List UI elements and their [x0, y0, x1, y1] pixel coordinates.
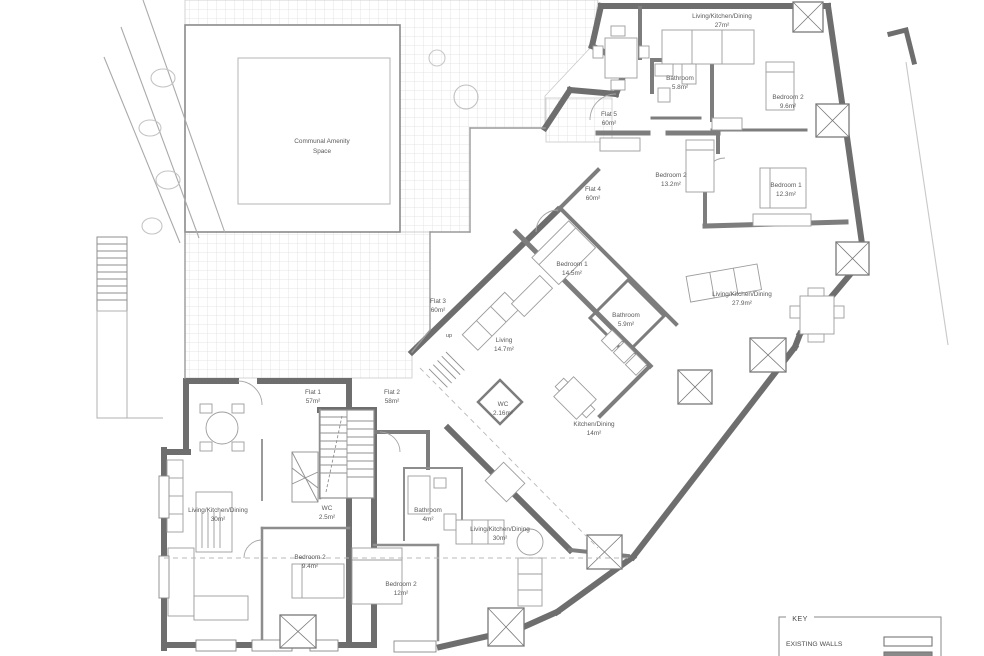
- label-flat3-area: 60m²: [431, 307, 446, 314]
- label-wc-216-area: 2.16m²: [493, 410, 513, 417]
- label-kitchen-dining-area: 14m²: [587, 430, 602, 437]
- label-bathroom-59: Bathroom: [612, 312, 640, 319]
- label-lkd-27-area: 27m²: [715, 22, 730, 29]
- key-row-existing-walls: EXISTING WALLS: [786, 641, 843, 648]
- structural-column-icon: [678, 370, 712, 404]
- label-bedroom2-12: Bedroom 2: [385, 581, 417, 588]
- structural-column-icon: [816, 104, 849, 137]
- floorplan-canvas: Communal Amenity Space Living/Kitchen/Di…: [0, 0, 984, 656]
- structural-column-icon: [750, 338, 786, 372]
- label-bathroom-4-area: 4m²: [422, 516, 433, 523]
- structural-column-icon: [280, 615, 316, 648]
- structural-column-icon: [587, 535, 622, 569]
- label-bedroom1-145: Bedroom 1: [556, 261, 588, 268]
- label-lkd-30-flat1-area: 30m²: [211, 516, 226, 523]
- label-bathroom-59-area: 5.9m²: [618, 321, 634, 328]
- label-bedroom2-132: Bedroom 2: [655, 172, 687, 179]
- label-bedroom1-145-area: 14.5m²: [562, 270, 582, 277]
- label-bedroom2-132-area: 13.2m²: [661, 181, 681, 188]
- label-lkd-279: Living/Kitchen/Dining: [712, 291, 772, 298]
- label-bedroom2-96: Bedroom 2: [772, 94, 804, 101]
- label-flat5-area: 60m²: [602, 120, 617, 127]
- label-bedroom2-12-area: 12m²: [394, 590, 409, 597]
- structural-column-icon: [488, 608, 524, 646]
- label-communal-amenity-2: Space: [313, 148, 332, 155]
- label-bathroom-58: Bathroom: [666, 75, 694, 82]
- label-communal-amenity: Communal Amenity: [294, 138, 350, 145]
- label-wc-216: WC: [498, 401, 509, 408]
- structural-column-icon: [836, 242, 869, 275]
- label-wc-25-area: 2.5m²: [319, 514, 335, 521]
- label-flat3: Flat 3: [430, 298, 446, 305]
- label-flat5: Flat 5: [601, 111, 617, 118]
- key-swatch-proposed: [884, 652, 932, 656]
- label-lkd-27: Living/Kitchen/Dining: [692, 13, 752, 20]
- label-flat4-area: 60m²: [586, 195, 601, 202]
- label-up: up: [446, 333, 452, 339]
- stair-core: [292, 410, 374, 502]
- label-flat2-area: 58m²: [385, 398, 400, 405]
- structural-column-icon: [793, 2, 823, 32]
- label-lkd-30-flat2: Living/Kitchen/Dining: [470, 526, 530, 533]
- label-flat2: Flat 2: [384, 389, 400, 396]
- communal-amenity-room: [185, 25, 400, 232]
- label-living-147: Living: [496, 337, 513, 344]
- external-stair: [97, 237, 163, 418]
- label-wc-25: WC: [322, 505, 333, 512]
- label-lkd-30-flat1: Living/Kitchen/Dining: [188, 507, 248, 514]
- label-bedroom2-94-area: 9.4m²: [302, 563, 318, 570]
- key-swatch-existing: [884, 637, 932, 646]
- label-bedroom2-94: Bedroom 2: [294, 554, 326, 561]
- label-bedroom1-123: Bedroom 1: [770, 182, 802, 189]
- label-bathroom-58-area: 5.8m²: [672, 84, 688, 91]
- label-flat1-area: 57m²: [306, 398, 321, 405]
- label-bedroom1-123-area: 12.3m²: [776, 191, 796, 198]
- key-title: KEY: [792, 614, 808, 623]
- label-bathroom-4: Bathroom: [414, 507, 442, 514]
- label-flat1: Flat 1: [305, 389, 321, 396]
- label-lkd-30-flat2-area: 30m²: [493, 535, 508, 542]
- label-living-147-area: 14.7m²: [494, 346, 514, 353]
- label-kitchen-dining: Kitchen/Dining: [573, 421, 615, 428]
- label-bedroom2-96-area: 9.6m²: [780, 103, 796, 110]
- key-legend: KEY EXISTING WALLS: [779, 612, 941, 656]
- label-flat4: Flat 4: [585, 186, 601, 193]
- label-lkd-279-area: 27.9m²: [732, 300, 752, 307]
